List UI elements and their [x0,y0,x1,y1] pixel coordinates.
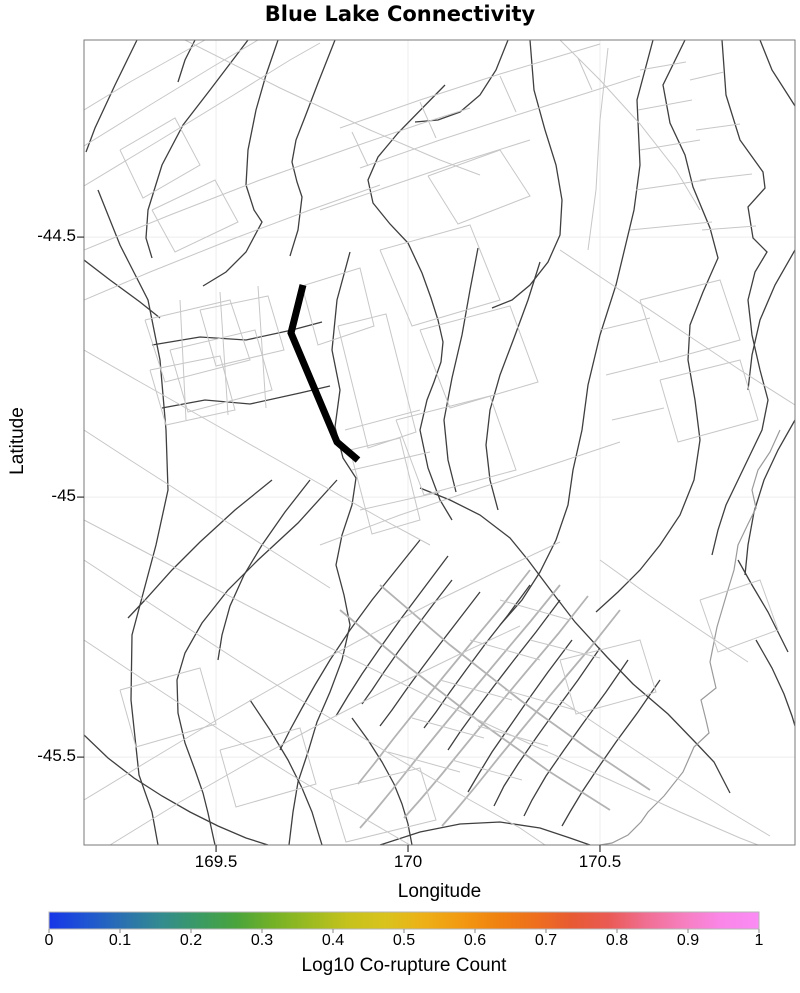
fault-trace-light [302,268,374,345]
fault-trace-dark [415,40,508,122]
colorbar-bar [49,912,759,929]
fault-trace-light [84,560,545,845]
fault-trace-dark [289,252,356,845]
colorbar-tick-label: 0.9 [677,932,699,950]
fault-trace-light [388,752,460,772]
fault-trace-light [638,100,692,110]
fault-trace-light [258,286,266,408]
fault-trace-light [180,300,186,420]
fault-trace-dark [738,560,788,652]
fault-trace-light [700,174,752,180]
colorbar-tick-label: 0.2 [180,932,202,950]
fault-trace-light [84,108,470,250]
fault-trace-dark [84,260,160,318]
fault-trace-dark [712,40,768,555]
colorbar-tick-label: 0.3 [251,932,273,950]
fault-trace-light [320,442,620,545]
fault-trace-light [606,362,658,375]
fault-trace-light [396,396,516,495]
y-tick-label: -45 [51,486,76,506]
fault-trace-light [500,76,516,112]
highlighted-fault-trace [291,285,358,460]
fault-trace-light [84,43,320,186]
fault-trace-light [340,44,600,128]
fault-trace-dark [492,40,562,308]
fault-trace-light [700,580,778,652]
x-tick-label: 170 [394,852,422,872]
colorbar-tick-label: 0.7 [535,932,557,950]
colorbar-tick-label: 0.4 [322,932,344,950]
fault-trace-light [84,185,380,300]
fault-trace-light [636,180,706,190]
colorbar-tick-label: 0.1 [109,932,131,950]
fault-trace-light [600,318,650,330]
fault-trace-light [220,292,228,415]
fault-trace-dark [424,585,530,728]
fault-trace-light [345,410,420,430]
fault-trace-light [352,452,430,470]
x-tick-label: 169.5 [195,852,238,872]
fault-trace-light [84,430,330,588]
fault-trace-light [612,408,664,420]
fault-trace-light [640,140,700,150]
fault-trace-light [630,222,712,230]
fault-trace-light [360,492,440,510]
fault-trace-dark [178,40,195,82]
fault-trace-dark [444,248,478,492]
fault-trace-dark [86,40,137,152]
fault-trace-light [330,768,436,842]
y-tick-label: -44.5 [37,226,76,246]
map-canvas [0,0,800,993]
fault-trace-dark [84,735,268,845]
grid-layer [84,40,795,845]
fault-trace-dark [218,480,310,660]
fault-trace-dark [380,592,480,726]
fault-trace-dark [290,40,335,256]
y-tick-label: -45.5 [37,746,76,766]
fault-trace-dark [760,40,795,106]
fault-trace-dark [500,40,653,625]
colorbar-tick-label: 0.5 [393,932,415,950]
fault-trace-light [220,728,316,807]
colorbar-tick-label: 0.8 [606,932,628,950]
fault-trace-light [380,225,500,326]
fault-trace-light [578,58,592,90]
fault-trace-light [84,520,758,845]
fault-trace-dark [250,700,322,845]
fault-trace-dark [203,40,278,286]
fault-trace-dark [420,488,730,793]
fault-trace-light [452,760,522,780]
fault-trace-light [600,560,748,662]
fault-trace-light [560,250,795,405]
fault-trace-light [152,180,238,252]
fault-trace-light [84,40,205,110]
fault-trace-light [640,280,740,362]
colorbar-tick-label: 0 [45,932,54,950]
figure: Blue Lake Connectivity Latitude Longitud… [0,0,800,993]
plot-border [84,40,795,845]
fault-trace-light [696,124,740,130]
fault-trace-light [690,72,724,80]
fault-trace-dark [146,40,248,258]
fault-trace-coast [600,430,780,845]
fault-network-layer [84,40,795,845]
fault-trace-dark [596,40,718,612]
colorbar-tick-label: 1 [755,932,764,950]
fault-trace-dark [562,680,660,826]
colorbar-tick-label: 0.6 [464,932,486,950]
fault-trace-light [352,132,368,166]
fault-trace-light [350,438,420,534]
fault-trace-light [120,118,200,198]
fault-trace-light [84,350,430,545]
fault-trace-light [145,300,250,382]
fault-trace-mid [442,610,620,826]
fault-trace-light [560,700,770,836]
fault-trace-dark [128,480,272,618]
fault-trace-dark [756,640,795,726]
fault-trace-light [84,40,258,146]
fault-trace-dark [98,190,168,845]
fault-trace-light [200,296,284,366]
x-tick-label: 170.5 [579,852,622,872]
